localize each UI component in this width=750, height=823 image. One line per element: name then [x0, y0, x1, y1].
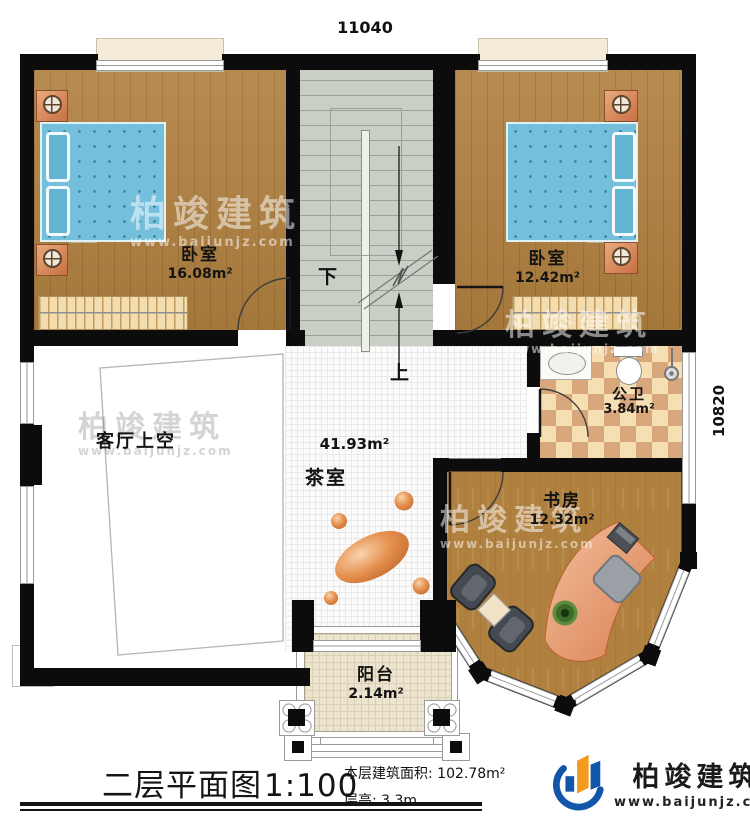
bathroom-label: 公卫 3.84m² [588, 386, 670, 418]
door-swings [238, 278, 588, 525]
room-name: 阳台 [330, 666, 422, 686]
plan-annotations [0, 0, 750, 760]
floor-area-value: 102.78m² [437, 766, 505, 782]
room-name: 卧室 [130, 246, 270, 266]
room-name: 公卫 [588, 386, 670, 403]
room-area: 16.08m² [130, 266, 270, 282]
dimension-top-width: 11040 [320, 18, 410, 37]
floor-area-row: 本层建筑面积: 102.78m² [344, 763, 505, 783]
floor-height-value: 3.3m [381, 793, 417, 809]
floor-height-label: 层高: [344, 793, 381, 809]
living-void-label: 客厅上空 [96, 432, 256, 453]
brand-logo-icon [550, 753, 608, 811]
room-area: 12.42m² [480, 270, 615, 286]
stairs-up-label: 上 [390, 358, 409, 385]
room-name: 茶室 [294, 468, 358, 490]
tea-room-label: 茶室 [294, 468, 358, 490]
room-area: 3.84m² [588, 403, 670, 418]
plan-title: 二层平面图1:100 [102, 760, 358, 805]
room-area: 41.93m² [312, 436, 397, 453]
brand-text: 柏竣建筑 www.baijunjz.com [614, 755, 750, 810]
plan-title-text: 二层平面图 [102, 768, 262, 804]
brand-name: 柏竣建筑 [614, 755, 750, 794]
room-name: 书房 [502, 492, 622, 512]
balcony-label: 阳台 2.14m² [330, 666, 422, 702]
room-name: 卧室 [480, 250, 615, 270]
floor-area-label: 本层建筑面积: [344, 766, 437, 782]
tea-room-area-label: 41.93m² [312, 436, 397, 453]
stairs-down-label: 下 [318, 262, 337, 289]
floor-plan-page: 11040 10820 [0, 0, 750, 823]
brand-website: www.baijunjz.com [614, 795, 750, 810]
study-label: 书房 12.32m² [502, 492, 622, 528]
bedroom-right-label: 卧室 12.42m² [480, 250, 615, 286]
plan-specs: 本层建筑面积: 102.78m² 层高: 3.3m [344, 763, 505, 817]
stair-direction-arrows [358, 146, 438, 366]
floor-height-row: 层高: 3.3m [344, 790, 505, 810]
dimension-right-height: 10820 [710, 380, 728, 442]
room-area: 12.32m² [502, 512, 622, 528]
room-area: 2.14m² [330, 686, 422, 702]
room-name: 客厅上空 [96, 432, 256, 453]
bedroom-left-label: 卧室 16.08m² [130, 246, 270, 282]
brand-logo: 柏竣建筑 www.baijunjz.com [550, 753, 750, 811]
